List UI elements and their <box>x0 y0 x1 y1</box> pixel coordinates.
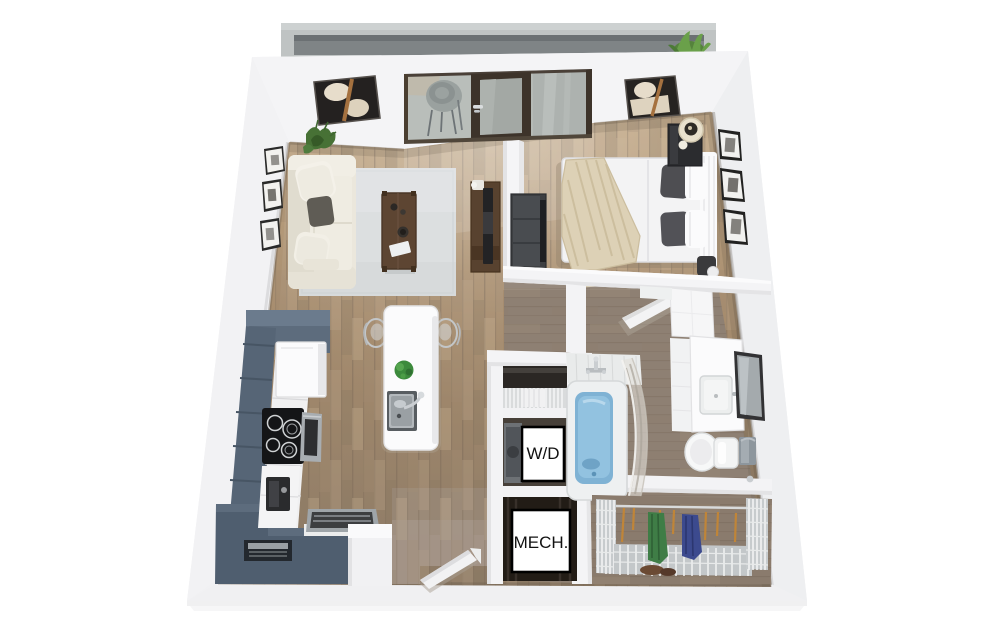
svg-text:MECH.: MECH. <box>514 533 569 552</box>
svg-text:W/D: W/D <box>526 444 559 463</box>
